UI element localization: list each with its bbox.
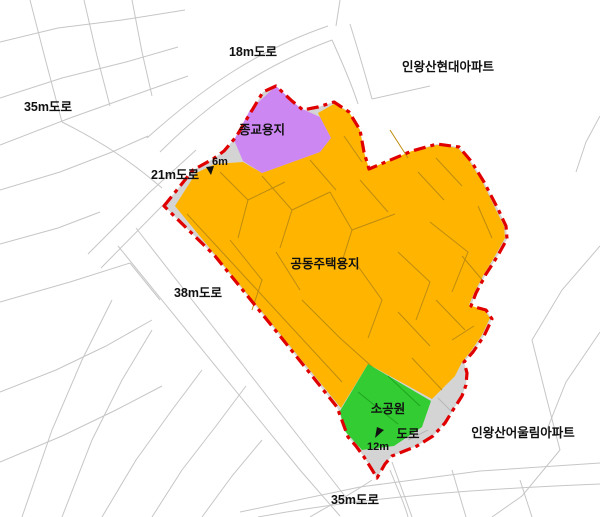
- label-road-12m: 12m: [367, 441, 389, 453]
- cadastral-line: [336, 0, 340, 26]
- cadastral-line: [0, 212, 100, 244]
- cadastral-line: [240, 463, 600, 512]
- cadastral-line: [62, 122, 162, 188]
- label-road-35m-left: 35m도로: [24, 100, 73, 114]
- cadastral-line: [576, 116, 600, 172]
- label-road-6m: 6m: [212, 156, 228, 168]
- cadastral-line: [452, 470, 466, 517]
- cadastral-line: [132, 0, 152, 96]
- cadastral-line: [22, 300, 112, 517]
- cadastral-line: [392, 462, 412, 517]
- cadastral-line: [390, 470, 408, 517]
- label-housing-site: 공동주택용지: [290, 256, 359, 271]
- cadastral-line: [0, 136, 148, 190]
- cadastral-line: [0, 47, 178, 98]
- label-religious-site: 종교용지: [239, 122, 285, 137]
- cadastral-line: [332, 40, 358, 104]
- zoning-map: 18m도로 인왕산현대아파트 35m도로 21m도로 6m 38m도로 공동주택…: [0, 0, 600, 517]
- cadastral-line: [202, 440, 262, 517]
- label-road-18m: 18m도로: [229, 45, 278, 59]
- cadastral-line: [102, 370, 202, 517]
- label-apartment-eoullim: 인왕산어울림아파트: [471, 425, 575, 440]
- cadastral-line: [532, 246, 600, 340]
- label-road-35m-bottom: 35m도로: [331, 493, 380, 507]
- label-road-38m: 38m도로: [174, 286, 223, 300]
- label-road-21m: 21m도로: [151, 168, 200, 182]
- cadastral-line: [130, 263, 160, 300]
- label-road: 도로: [396, 427, 420, 441]
- cadastral-line: [492, 450, 560, 517]
- cadastral-line: [152, 386, 246, 517]
- zoning-map-canvas: 18m도로 인왕산현대아파트 35m도로 21m도로 6m 38m도로 공동주택…: [0, 0, 600, 517]
- cadastral-line: [0, 263, 130, 302]
- cadastral-line: [372, 86, 430, 99]
- cadastral-line: [62, 330, 152, 517]
- cadastral-line: [0, 386, 162, 462]
- cadastral-line: [0, 320, 152, 392]
- label-apartment-hyundai: 인왕산현대아파트: [402, 59, 495, 74]
- cadastral-line: [546, 332, 600, 432]
- cadastral-line: [350, 24, 372, 99]
- parcel-line: [390, 130, 408, 158]
- cadastral-line: [258, 484, 600, 517]
- cadastral-line: [84, 0, 110, 106]
- label-small-park: 소공원: [371, 402, 406, 416]
